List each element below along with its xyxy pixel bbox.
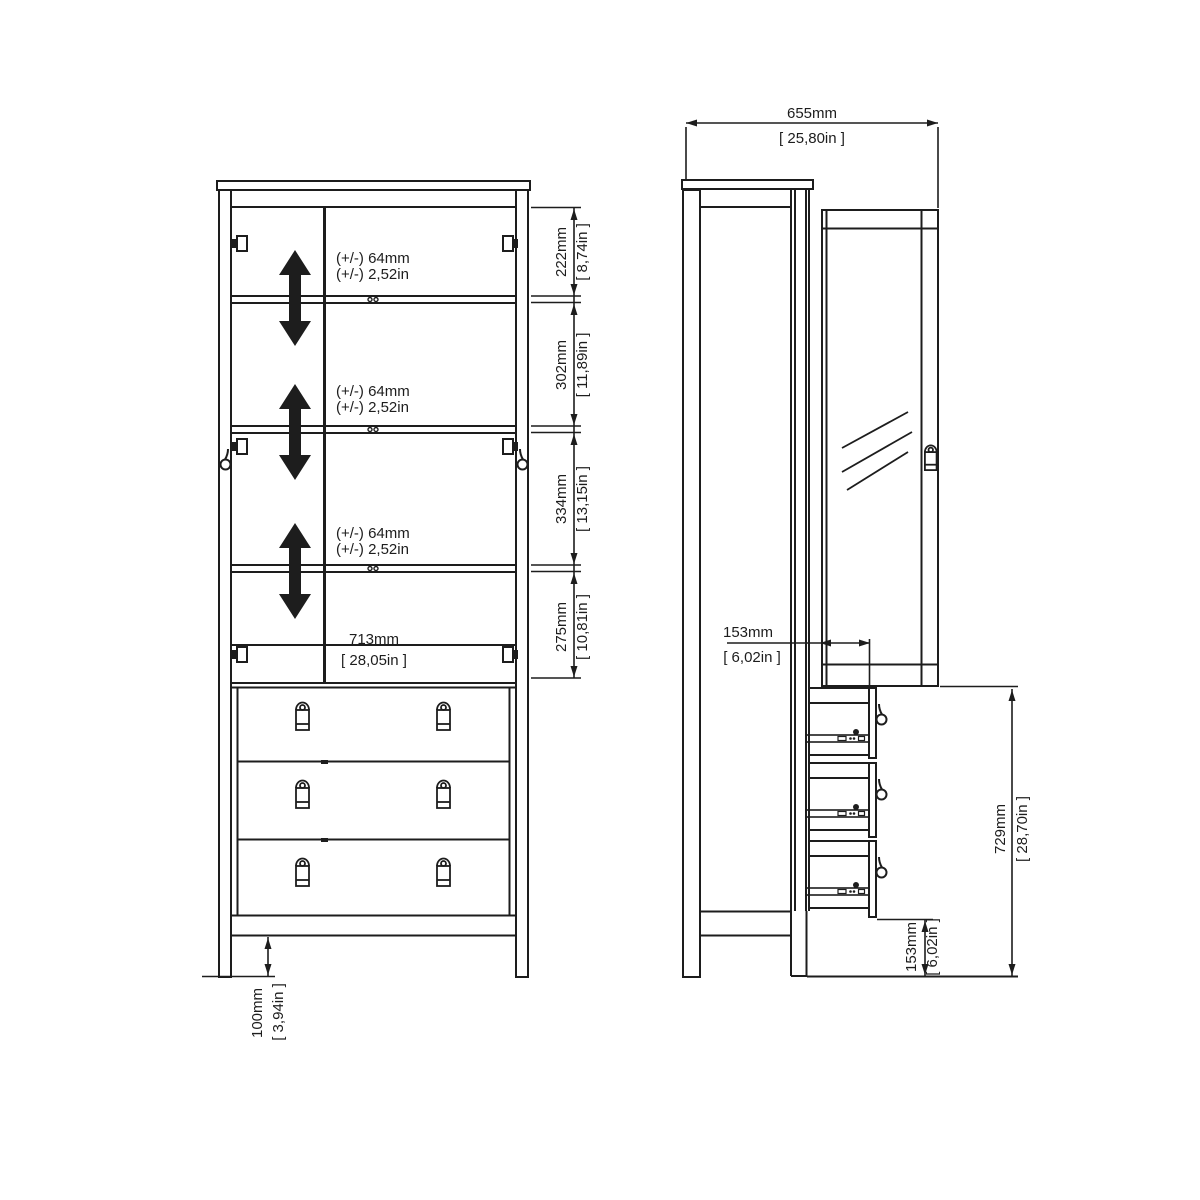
dim-334-mm-label: 334mm <box>554 474 570 524</box>
dim-655-mm-label: 655mm <box>787 106 837 122</box>
shelf-adjust-arrow-icon <box>279 250 311 346</box>
shelf-note-in: (+/-) 2,52in <box>336 542 409 558</box>
front-left-wall <box>219 190 231 977</box>
shelf-note-in: (+/-) 2,52in <box>336 267 409 283</box>
dim-153-bot-mm-label: 153mm <box>904 922 920 972</box>
side-view <box>682 120 1018 978</box>
dim-153-bot-in-label: [ 6,02in ] <box>925 918 941 976</box>
side-back-panel <box>683 190 700 977</box>
drawer-handle-icon <box>296 703 309 731</box>
shelf-note-mm: (+/-) 64mm <box>336 384 410 400</box>
shelf-note-mm: (+/-) 64mm <box>336 251 410 267</box>
door-handle-right-icon <box>518 449 528 470</box>
side-top-board <box>682 180 813 189</box>
drawer-handle-icon <box>437 859 450 887</box>
drawer-handle-icon <box>437 781 450 809</box>
dim-713-in-label: [ 28,05in ] <box>341 653 407 669</box>
drawer-handles <box>296 703 450 887</box>
dim-334-in-label: [ 13,15in ] <box>575 466 591 532</box>
shelf-note-mm: (+/-) 64mm <box>336 526 410 542</box>
drawer-handle-icon <box>296 781 309 809</box>
open-drawers <box>806 688 887 917</box>
side-drawer-handle-icon <box>877 779 887 800</box>
dim-100-in-label: [ 3,94in ] <box>271 983 287 1041</box>
dim-729-in-label: [ 28,70in ] <box>1015 796 1031 862</box>
divider-notch <box>321 838 328 842</box>
dim-655-in-label: [ 25,80in ] <box>779 131 845 147</box>
side-drawer-handle-icon <box>877 704 887 725</box>
drawer-handle-icon <box>437 703 450 731</box>
drawer-front-edge <box>869 763 876 837</box>
dim-729-mm-label: 729mm <box>993 804 1009 854</box>
front-top-board <box>217 181 530 190</box>
drawing-linework <box>0 0 1200 1200</box>
dim-302-in-label: [ 11,89in ] <box>575 333 591 398</box>
glass-hatch-icon <box>842 412 912 490</box>
side-door-handle-icon <box>925 445 937 470</box>
dim-100-mm-label: 100mm <box>250 988 266 1038</box>
dim-713-mm-label: 713mm <box>349 632 399 648</box>
dim-222-mm-label: 222mm <box>554 227 570 277</box>
front-right-wall <box>516 190 528 977</box>
door-handle-left-icon <box>221 449 231 470</box>
dim-100-lines <box>202 937 275 977</box>
dim-275-in-label: [ 10,81in ] <box>575 594 591 660</box>
divider-notch <box>321 760 328 764</box>
side-drawer-handle-icon <box>877 857 887 878</box>
front-view <box>202 181 581 977</box>
drawer-front-edge <box>869 688 876 758</box>
technical-drawing-cabinet: (+/-) 64mm (+/-) 2,52in (+/-) 64mm (+/-)… <box>0 0 1200 1200</box>
dim-153-top-mm-label: 153mm <box>723 625 773 641</box>
drawer-front-edge <box>869 841 876 917</box>
dim-275-mm-label: 275mm <box>554 602 570 652</box>
drawer-handle-icon <box>296 859 309 887</box>
dim-153-top-in-label: [ 6,02in ] <box>723 650 781 666</box>
dim-222-in-label: [ 8,74in ] <box>575 223 591 281</box>
door-hinges <box>233 236 517 662</box>
dim-302-mm-label: 302mm <box>554 340 570 390</box>
shelf-note-in: (+/-) 2,52in <box>336 400 409 416</box>
open-glass-door <box>822 210 938 686</box>
